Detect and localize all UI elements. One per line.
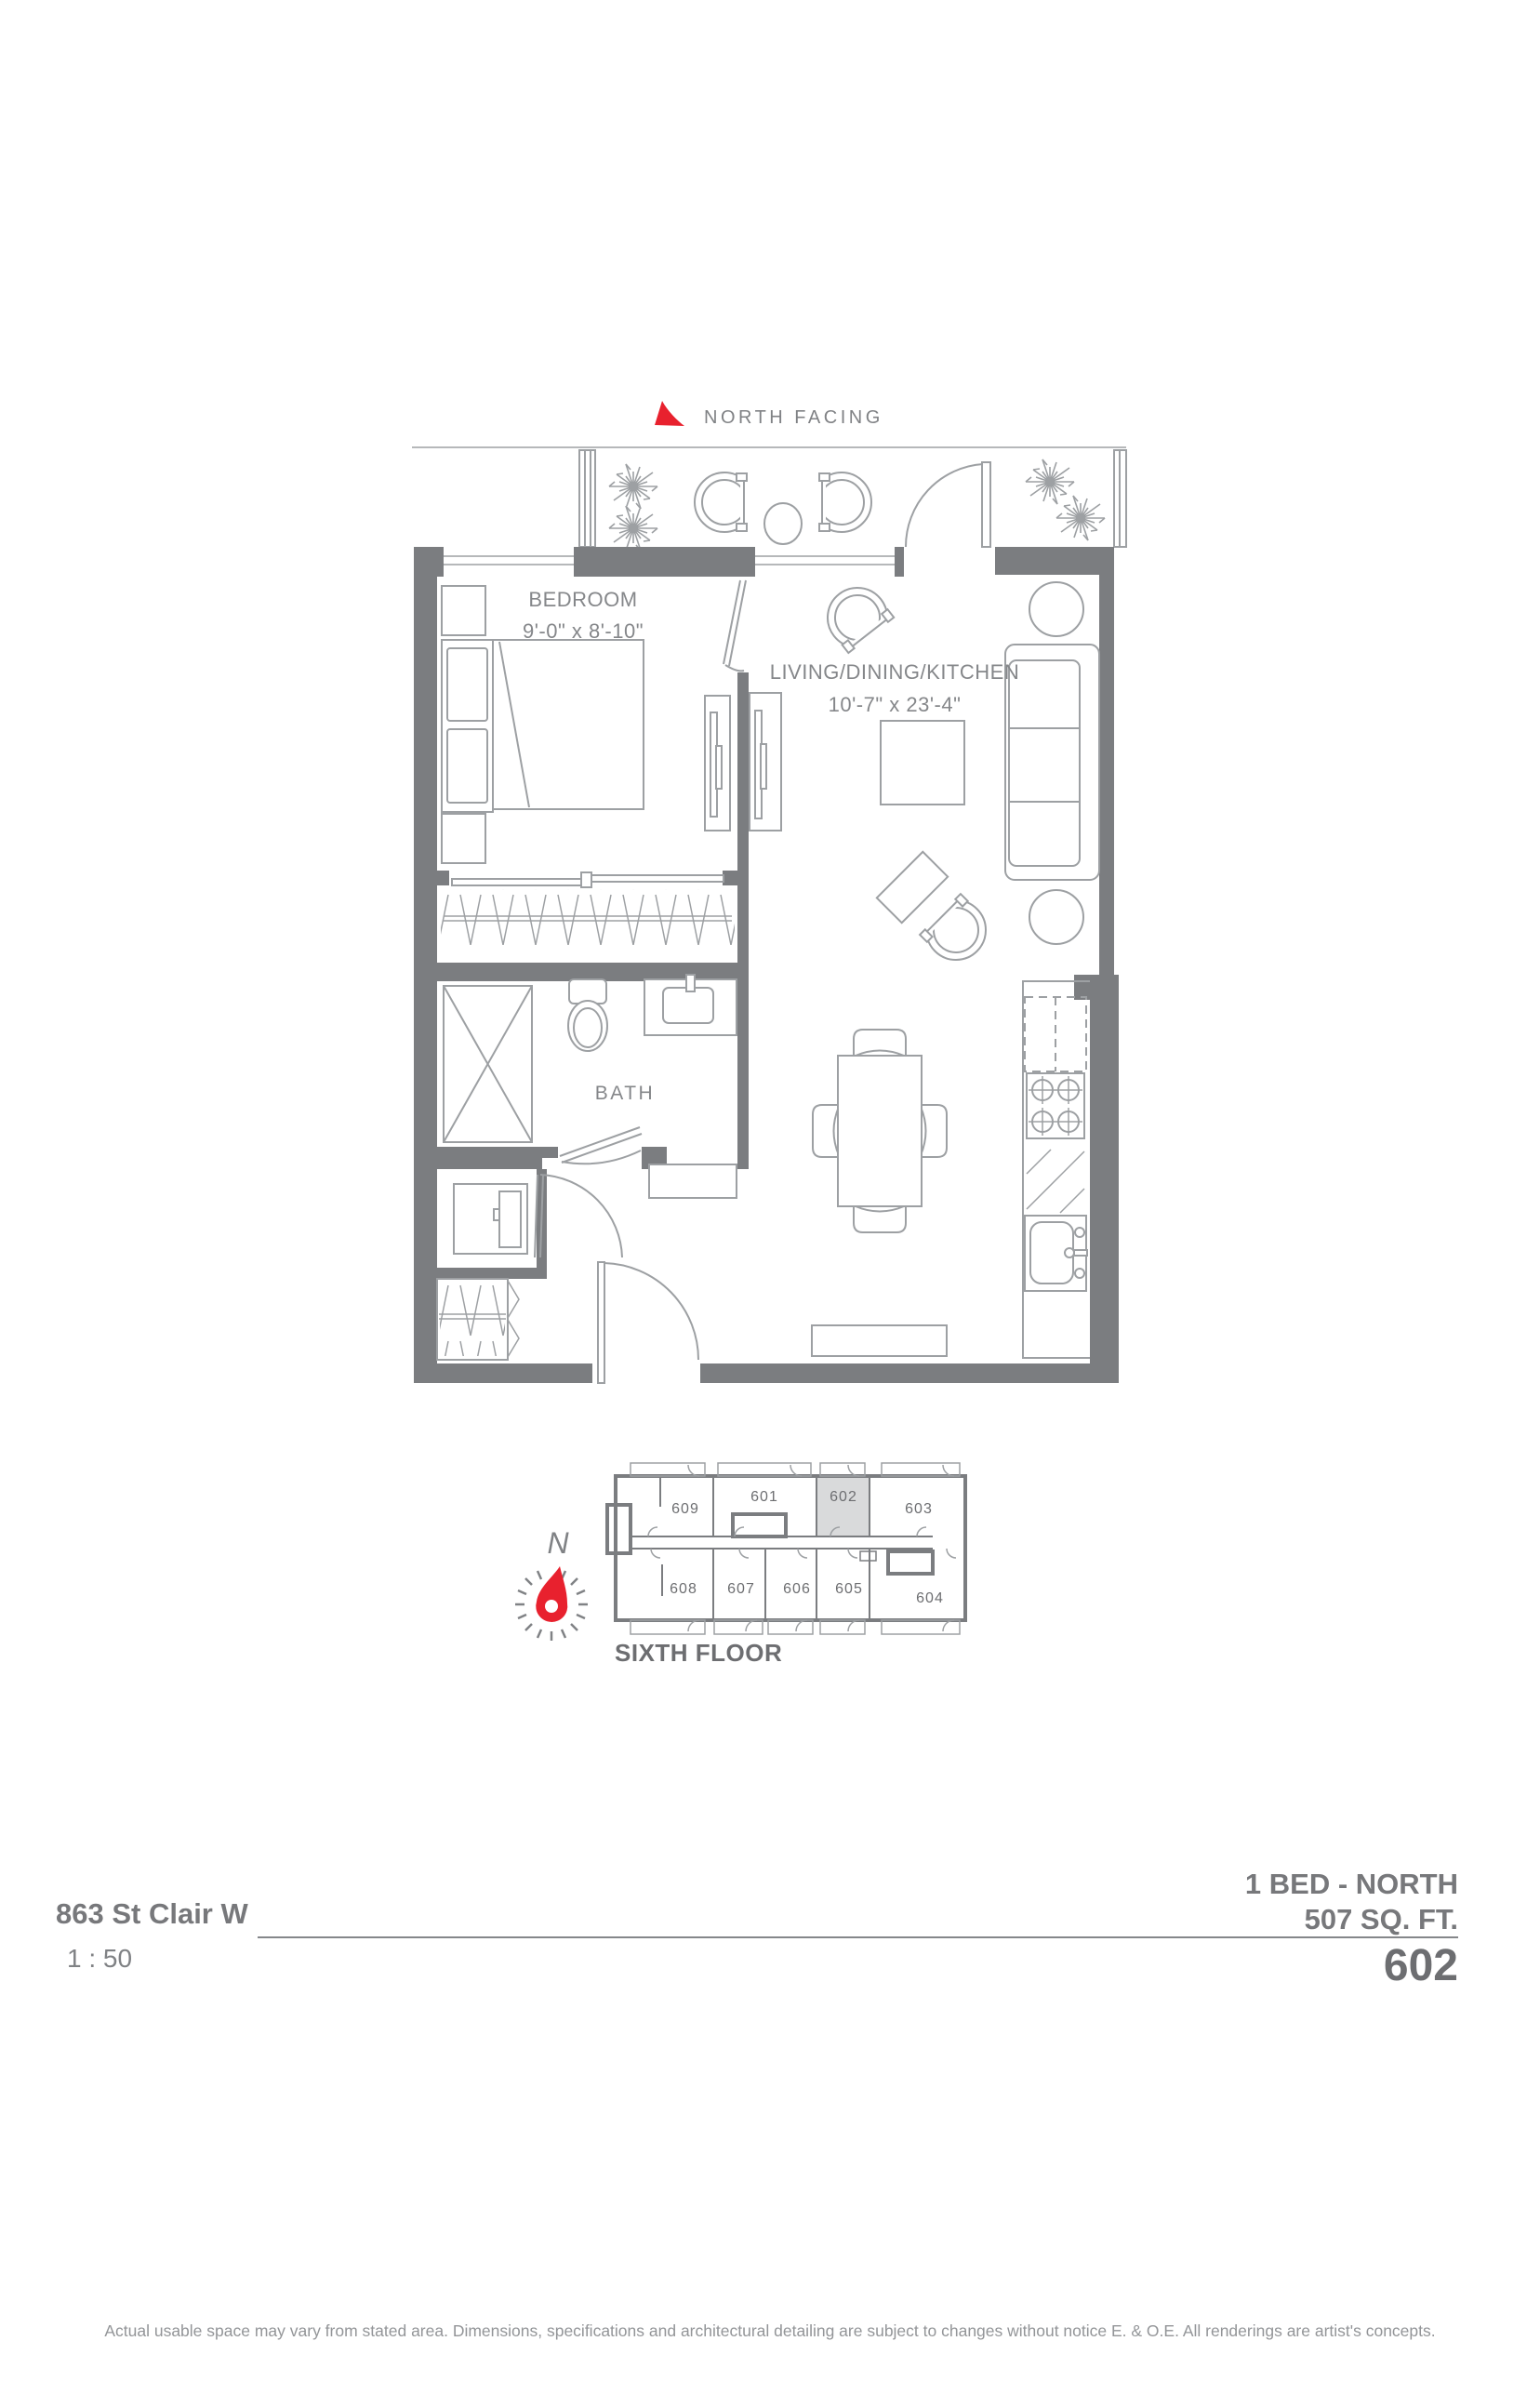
compass-north-label: N bbox=[547, 1526, 569, 1560]
floor-label: SIXTH FLOOR bbox=[615, 1639, 782, 1667]
closet-sliding-door bbox=[586, 875, 724, 882]
tree-icon bbox=[609, 464, 657, 509]
north-facing: NORTH FACING bbox=[655, 401, 883, 428]
bath-door bbox=[560, 1127, 642, 1164]
dining-chair bbox=[854, 1206, 906, 1232]
bath-label: BATH bbox=[595, 1083, 655, 1104]
counter-hatch bbox=[1027, 1150, 1084, 1213]
bed bbox=[442, 640, 644, 812]
entry-closet bbox=[437, 1279, 519, 1360]
balcony-table bbox=[764, 503, 802, 544]
floorplan-sheet: { "plan": { "north_facing": "NORTH FACIN… bbox=[0, 0, 1540, 2381]
fridge bbox=[1025, 997, 1086, 1071]
side-table bbox=[1029, 890, 1083, 944]
keyplan-unit-605: 605 bbox=[835, 1581, 863, 1597]
keyplan-unit-608: 608 bbox=[670, 1581, 697, 1597]
bathroom: BATH bbox=[444, 975, 737, 1164]
balcony-door bbox=[906, 462, 990, 547]
compass-needle-hole bbox=[545, 1600, 558, 1613]
sideboard bbox=[812, 1325, 947, 1356]
keyplan: 609 601 602 603 608 607 606 605 604 SIXT… bbox=[607, 1463, 965, 1667]
hall-console bbox=[649, 1164, 737, 1198]
bedroom-door bbox=[724, 580, 746, 671]
bedroom-closet bbox=[441, 872, 735, 945]
side-table bbox=[1029, 582, 1083, 636]
vanity-sink bbox=[644, 975, 737, 1035]
keyplan-stairs bbox=[888, 1551, 933, 1574]
north-arrow-icon bbox=[655, 401, 684, 426]
entry-door bbox=[598, 1262, 698, 1383]
closet-sliding-door bbox=[452, 879, 591, 885]
tree-icon bbox=[1056, 496, 1105, 540]
nightstand bbox=[442, 586, 485, 635]
dining-chair bbox=[813, 1105, 839, 1157]
armchair bbox=[815, 575, 902, 662]
kitchen bbox=[1023, 981, 1090, 1358]
balcony bbox=[412, 447, 1126, 551]
shower bbox=[444, 986, 532, 1142]
keyplan-unit-604: 604 bbox=[916, 1590, 944, 1606]
living-dimensions: 10'-7" x 23'-4" bbox=[829, 693, 962, 716]
keyplan-unit-609: 609 bbox=[671, 1501, 699, 1517]
compass: N bbox=[515, 1526, 588, 1641]
north-facing-label: NORTH FACING bbox=[704, 407, 883, 428]
keyplan-unit-603: 603 bbox=[905, 1501, 933, 1517]
plan-name: 1 BED - NORTH bbox=[1245, 1868, 1458, 1901]
floorplan-drawing: BEDROOM 9'-0" x 8'-10" LIVING/DINING/KIT… bbox=[0, 0, 1540, 2381]
dining-table bbox=[838, 1056, 922, 1206]
scale-label: 1 : 50 bbox=[67, 1944, 132, 1974]
keyplan-highlight-602 bbox=[816, 1476, 870, 1536]
bedroom: BEDROOM 9'-0" x 8'-10" bbox=[441, 580, 781, 945]
living-window bbox=[755, 549, 895, 575]
toilet bbox=[568, 979, 607, 1051]
keyplan-unit-607: 607 bbox=[727, 1581, 755, 1597]
disclaimer: Actual usable space may vary from stated… bbox=[0, 2321, 1540, 2341]
living-room: LIVING/DINING/KITCHEN 10'-7" x 23'-4" bbox=[770, 575, 1099, 972]
dining-chair bbox=[921, 1105, 947, 1157]
tree-icon bbox=[1026, 459, 1074, 504]
titleblock-rule bbox=[258, 1936, 1458, 1938]
living-label: LIVING/DINING/KITCHEN bbox=[770, 660, 1019, 684]
bedroom-window bbox=[444, 549, 574, 575]
keyplan-unit-601: 601 bbox=[750, 1489, 778, 1505]
stove bbox=[1027, 1073, 1084, 1138]
dining-chair bbox=[854, 1030, 906, 1056]
balcony-chair bbox=[808, 472, 871, 533]
balcony-left-pillar bbox=[579, 450, 595, 547]
keyplan-unit-606: 606 bbox=[783, 1581, 811, 1597]
dining-area bbox=[812, 1030, 947, 1356]
tree-icon bbox=[609, 506, 657, 551]
unit-number: 602 bbox=[1384, 1940, 1458, 1991]
coffee-table bbox=[881, 721, 964, 805]
bedroom-label: BEDROOM bbox=[528, 588, 637, 611]
keyplan-unit-602: 602 bbox=[830, 1489, 857, 1505]
balcony-right-pillar bbox=[1114, 450, 1126, 547]
kitchen-counter bbox=[1023, 981, 1090, 1358]
keyplan-core bbox=[733, 1514, 786, 1536]
plan-area: 507 SQ. FT. bbox=[1305, 1903, 1458, 1936]
address: 863 St Clair W bbox=[56, 1897, 248, 1931]
keyplan-elevator bbox=[607, 1505, 631, 1553]
kitchen-sink bbox=[1025, 1216, 1087, 1291]
nightstand bbox=[442, 814, 485, 863]
bedroom-dimensions: 9'-0" x 8'-10" bbox=[523, 619, 644, 643]
balcony-chair bbox=[695, 472, 758, 533]
